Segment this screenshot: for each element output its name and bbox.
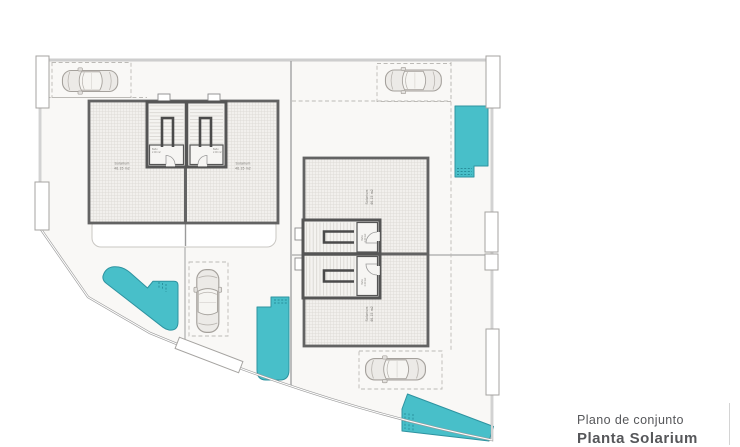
stair-room-label: 2.00 m2 [213,151,222,154]
gate-pillar [485,212,498,252]
car-top-left [62,68,117,94]
gate-pillar [36,56,49,108]
room-label-right-a: Solarium [365,190,369,205]
right-building: Baño 2.00 m2 Baño 2.00 m2 Solarium 46.15… [295,158,428,346]
car-top-right [385,67,441,93]
room-label-right-b: Solarium [365,307,369,322]
site-plan-drawing: Baño 2.00 m2 Baño 2.00 m2 Solarium 46.15… [0,0,740,445]
room-area-right-b: 46.15 m2 [370,306,374,322]
room-area-right-a: 46.15 m2 [370,189,374,205]
stair-room-label: 2.00 m2 [364,277,367,286]
gate-pillar [485,254,498,270]
left-building: Baño 2.00 m2 Baño 2.00 m2 Solarium 46.15… [89,94,278,247]
pool-top-right [455,106,488,177]
titleblock: Plano de conjunto Planta Solarium [577,413,698,447]
stair-room-label: 2.00 m2 [364,233,367,242]
gate-pillar [486,329,499,395]
plan-subtitle: Plano de conjunto [577,413,698,428]
gate-pillar [486,56,500,108]
car-middle [194,270,222,333]
stair-treads [150,105,184,145]
room-area-left-a: 46.15 m2 [114,166,130,170]
room-label-left-a: Solarium [115,162,130,166]
titleblock-divider [729,403,730,445]
right-stair-tower: Baño 2.00 m2 Baño 2.00 m2 [295,220,380,298]
left-stair-tower: Baño 2.00 m2 Baño 2.00 m2 [147,94,226,167]
car-bottom-right [366,356,426,383]
room-area-left-b: 46.15 m2 [235,166,251,170]
room-label-left-b: Solarium [236,162,251,166]
stair-treads [306,223,357,253]
stair-treads [306,257,357,296]
plan-title: Planta Solarium [577,430,698,447]
stair-landing-room [357,257,378,296]
stair-treads [190,105,223,145]
gate-pillar [35,182,49,230]
stair-room-label: 2.00 m2 [152,151,161,154]
pool-middle [257,297,289,380]
